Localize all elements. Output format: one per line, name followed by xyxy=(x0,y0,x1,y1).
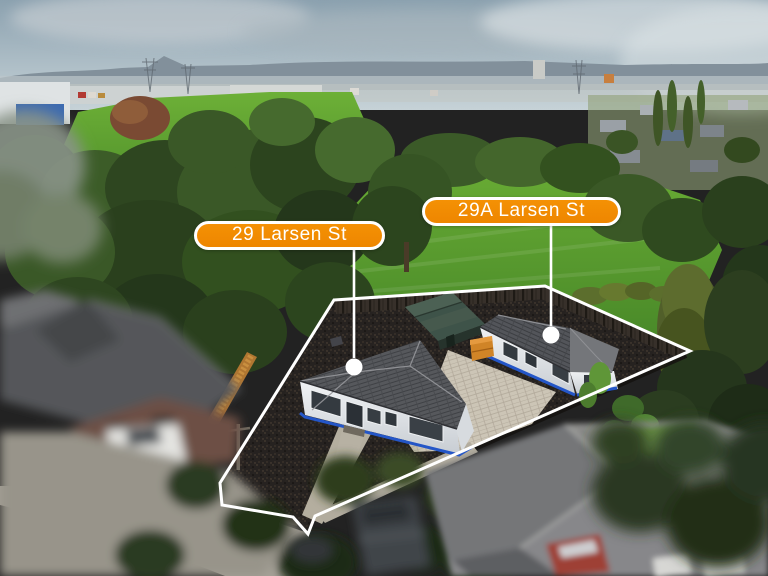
address-label-29a: 29A Larsen St xyxy=(422,197,621,226)
photo-scene xyxy=(0,0,768,576)
address-label-29a-text: 29A Larsen St xyxy=(458,200,585,222)
leader-dot-29 xyxy=(346,359,363,376)
address-label-29-text: 29 Larsen St xyxy=(232,224,347,246)
aerial-property-photo: 29 Larsen St 29A Larsen St xyxy=(0,0,768,576)
leader-dot-29a xyxy=(543,327,560,344)
address-label-29: 29 Larsen St xyxy=(194,221,385,250)
